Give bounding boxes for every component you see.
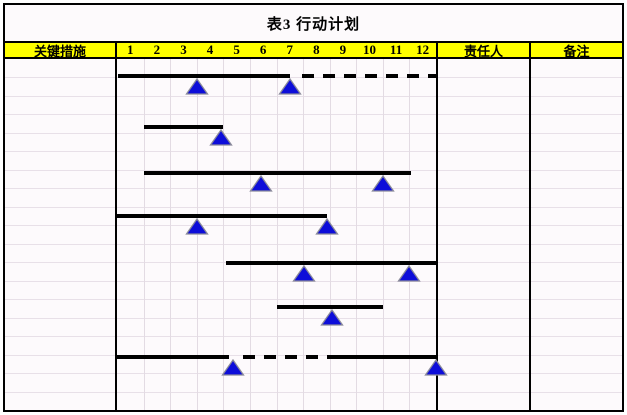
month-label: 11	[383, 43, 410, 57]
milestone-triangle-icon	[249, 175, 273, 192]
header-notes: 备注	[531, 43, 622, 57]
month-label: 3	[170, 43, 197, 57]
milestone-triangle-icon	[209, 129, 233, 146]
gantt-chart-body	[5, 59, 622, 410]
month-label: 9	[330, 43, 357, 57]
milestone-triangle-icon	[371, 175, 395, 192]
milestone-triangle-icon	[315, 218, 339, 235]
month-label: 7	[276, 43, 303, 57]
milestone-triangle-icon	[185, 218, 209, 235]
month-label: 2	[144, 43, 171, 57]
month-label: 6	[250, 43, 277, 57]
month-label: 5	[223, 43, 250, 57]
month-label: 12	[409, 43, 436, 57]
month-label: 4	[197, 43, 224, 57]
month-label: 10	[356, 43, 383, 57]
month-label: 8	[303, 43, 330, 57]
milestone-triangle-icon	[320, 309, 344, 326]
header-months: 123456789101112	[117, 43, 438, 57]
milestone-triangle-icon	[292, 265, 316, 282]
milestone-triangle-icon	[221, 359, 245, 376]
header-key-measures: 关键措施	[5, 43, 117, 57]
milestone-triangle-icon	[397, 265, 421, 282]
table-title: 表3 行动计划	[5, 5, 622, 41]
header-row: 关键措施 123456789101112 责任人 备注	[5, 41, 622, 59]
milestone-triangle-icon	[278, 78, 302, 95]
gantt-bar-segment	[117, 214, 327, 218]
action-plan-table: 表3 行动计划 关键措施 123456789101112 责任人 备注	[3, 3, 624, 412]
month-label: 1	[117, 43, 144, 57]
gantt-bar-segment	[117, 355, 229, 359]
gantt-bar-segment	[302, 74, 436, 78]
header-owner: 责任人	[438, 43, 531, 57]
milestone-triangle-icon	[424, 359, 448, 376]
gantt-bar-segment	[330, 355, 436, 359]
gantt-bar-segment	[243, 355, 329, 359]
column-divider-owner	[436, 59, 438, 410]
column-divider-notes	[529, 59, 531, 410]
milestone-triangle-icon	[185, 78, 209, 95]
page: 表3 行动计划 关键措施 123456789101112 责任人 备注	[0, 0, 627, 415]
